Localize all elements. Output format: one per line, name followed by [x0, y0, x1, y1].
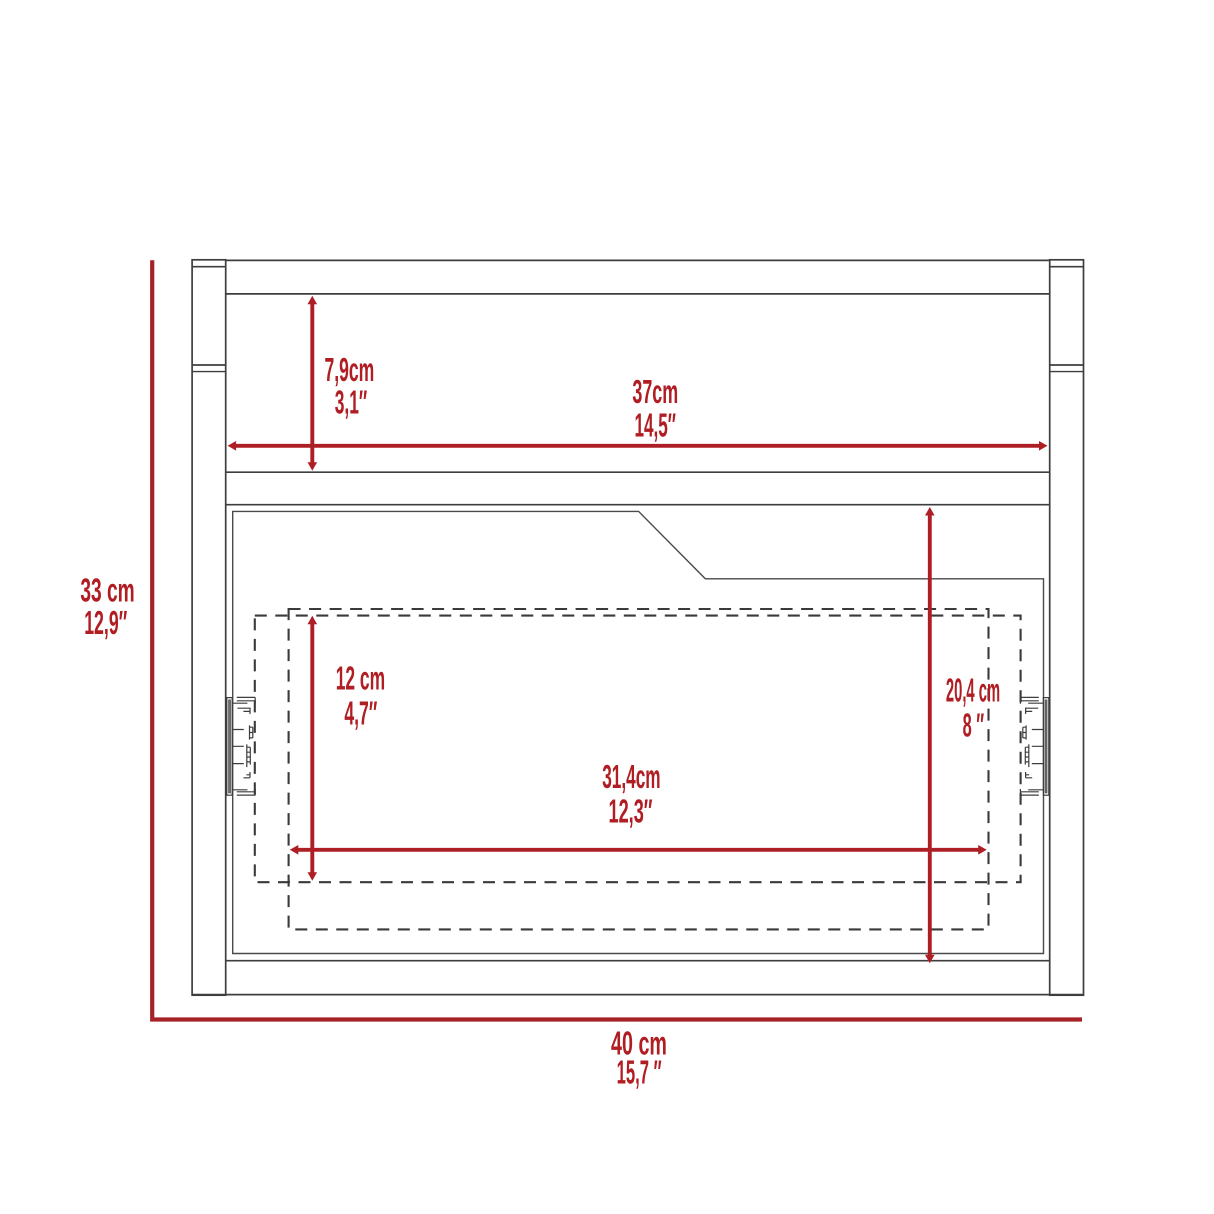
- svg-text:14,5″: 14,5″: [634, 407, 676, 444]
- svg-text:4,7″: 4,7″: [344, 695, 377, 732]
- svg-text:33 cm: 33 cm: [80, 572, 134, 609]
- svg-text:8 ″: 8 ″: [963, 707, 985, 744]
- svg-text:7,9cm: 7,9cm: [325, 351, 375, 388]
- svg-text:12,9″: 12,9″: [84, 604, 127, 641]
- svg-text:15,7 ″: 15,7 ″: [617, 1053, 662, 1090]
- svg-text:3,1″: 3,1″: [335, 384, 368, 421]
- svg-text:20,4 cm: 20,4 cm: [946, 672, 1000, 709]
- svg-text:37cm: 37cm: [632, 373, 678, 410]
- svg-text:31,4cm: 31,4cm: [602, 758, 660, 795]
- svg-text:12,3″: 12,3″: [609, 793, 653, 830]
- svg-text:12 cm: 12 cm: [336, 660, 385, 697]
